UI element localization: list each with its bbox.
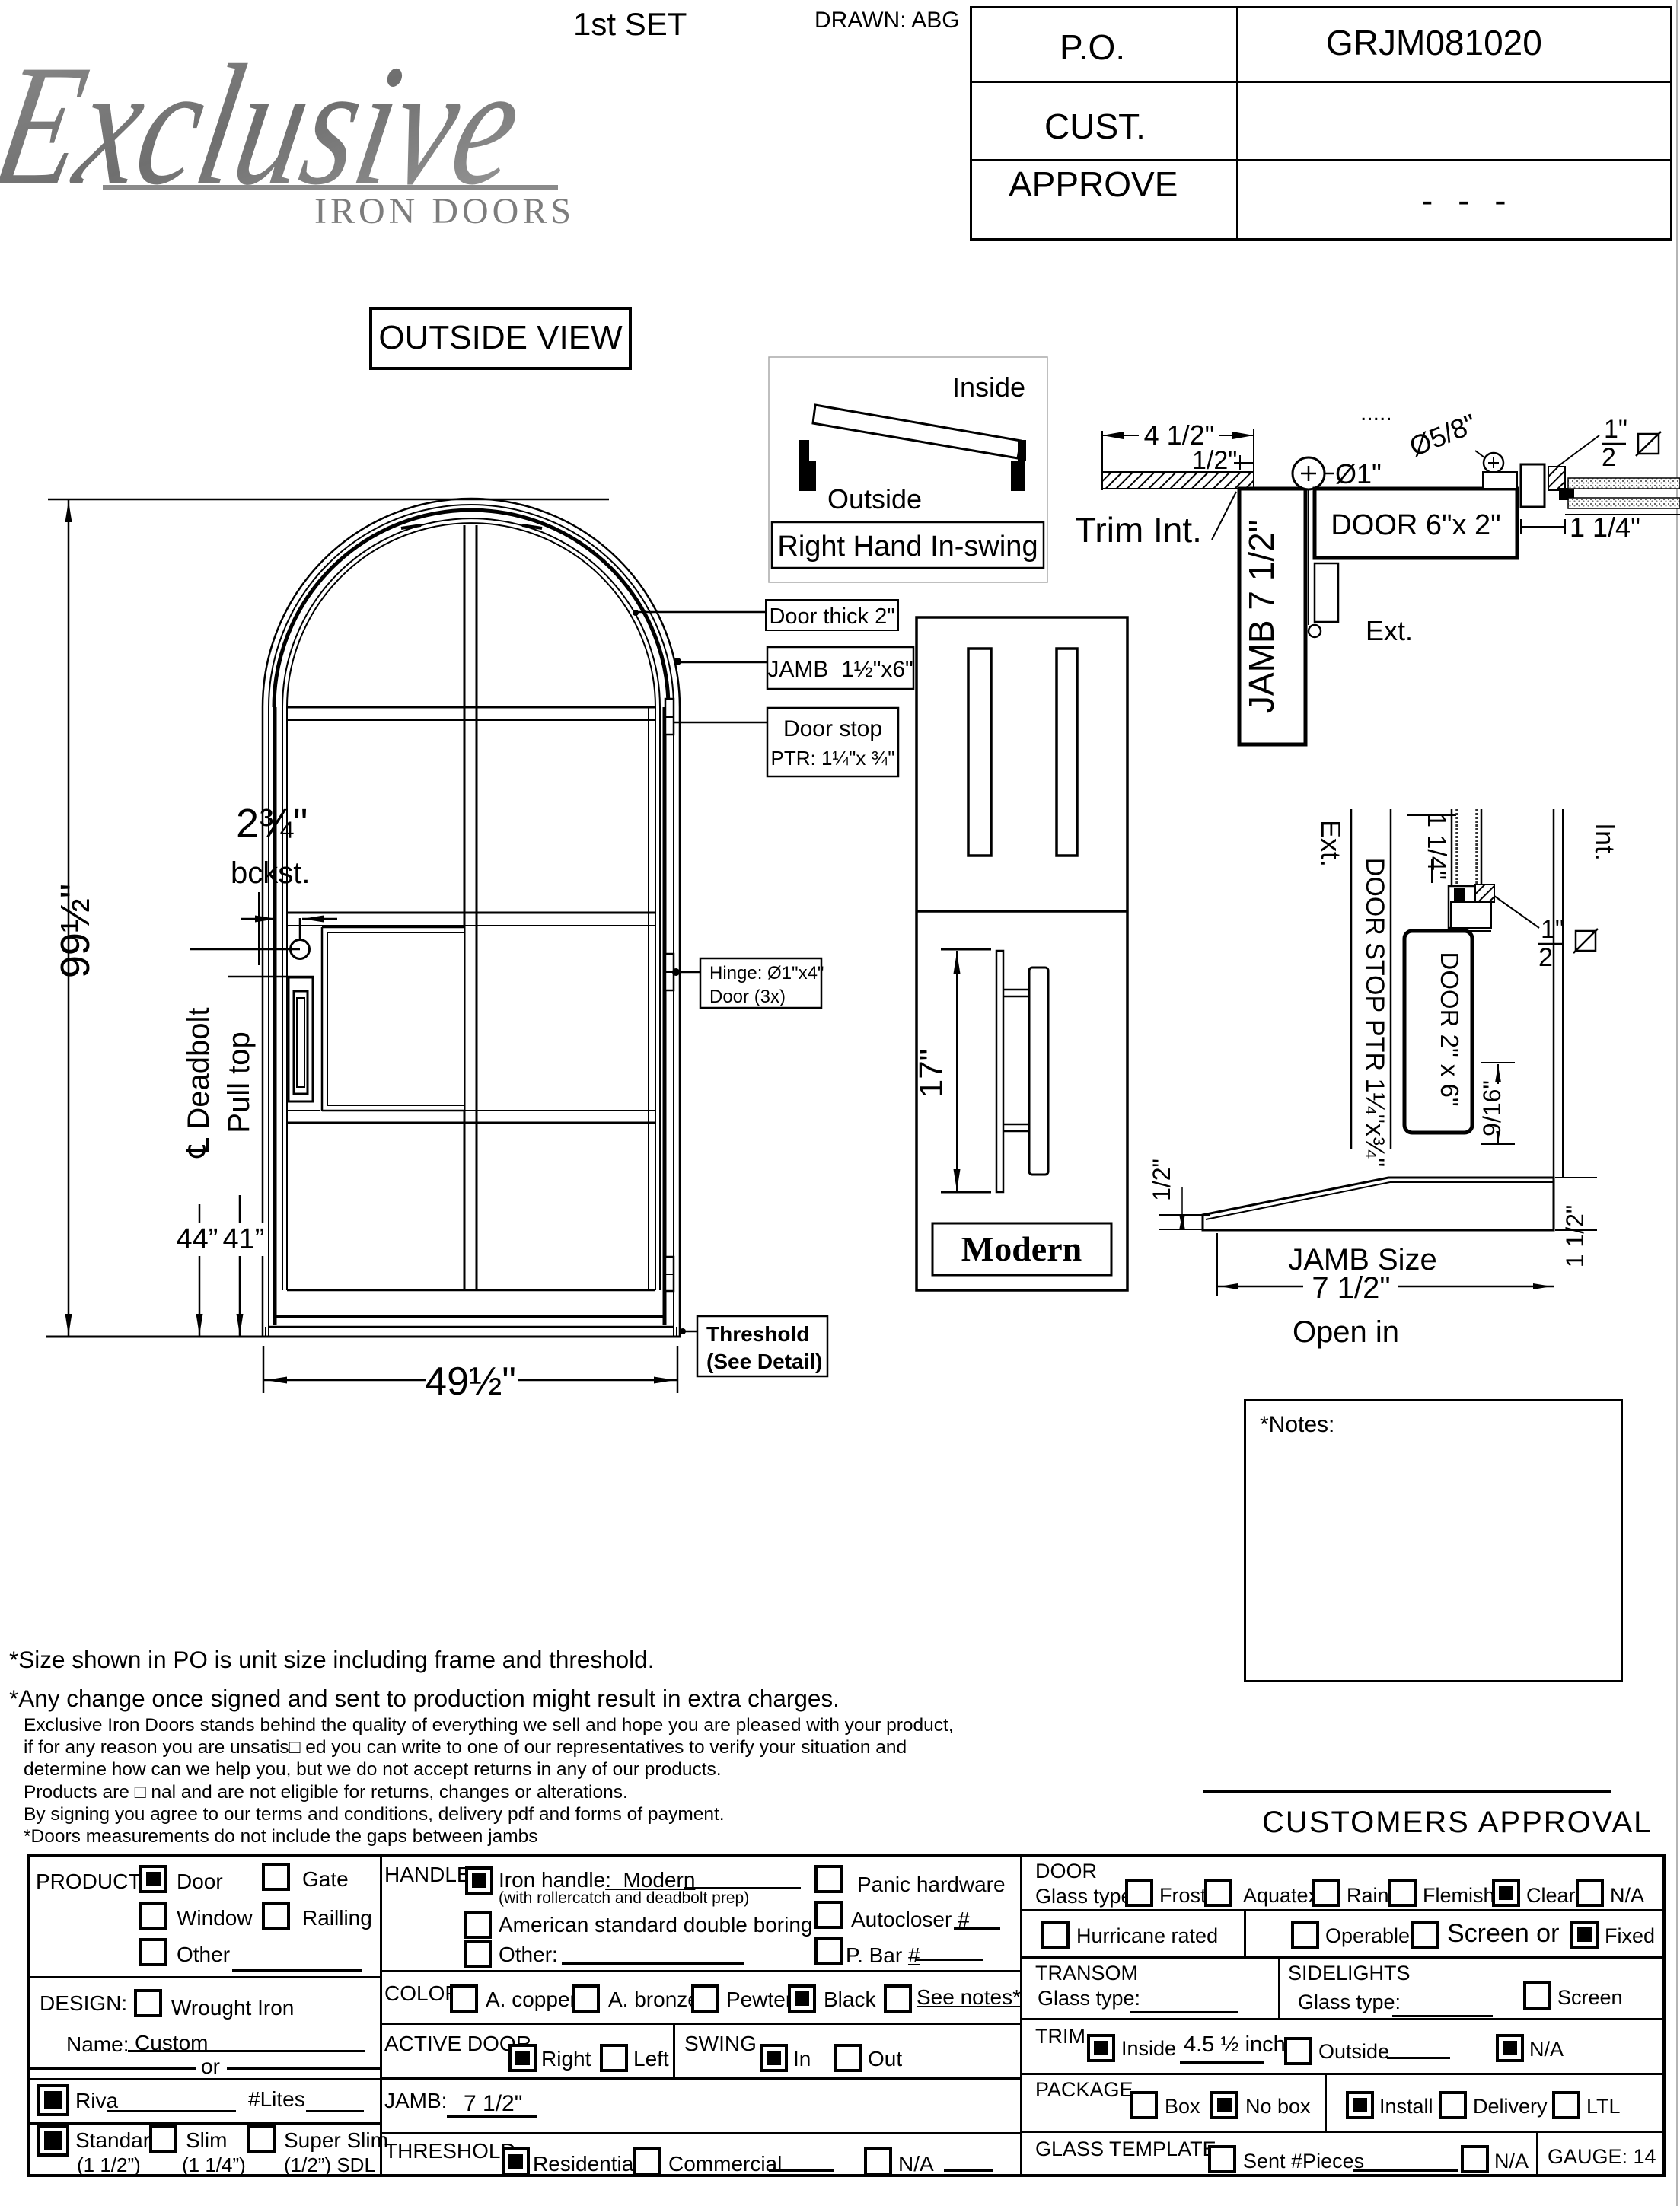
svg-text:41”: 41”: [223, 1223, 265, 1255]
svg-text:JAMB 7 1/2": JAMB 7 1/2": [1242, 520, 1281, 713]
svg-text:Ø5/8": Ø5/8": [1405, 407, 1481, 462]
svg-text:(See Detail): (See Detail): [706, 1350, 823, 1373]
svg-text:1": 1": [1541, 915, 1564, 944]
svg-text:1/2": 1/2": [1192, 446, 1237, 475]
svg-text:Int.: Int.: [1589, 823, 1621, 861]
svg-text:JAMB 1½"x6": JAMB 1½"x6": [767, 657, 913, 682]
svg-text:bckst.: bckst.: [231, 856, 310, 890]
svg-text:Door thick 2": Door thick 2": [769, 604, 894, 629]
svg-text:Threshold: Threshold: [706, 1322, 809, 1346]
svg-text:IRON DOORS: IRON DOORS: [314, 191, 575, 231]
svg-text:1": 1": [1604, 415, 1627, 444]
svg-text:Door stop: Door stop: [783, 716, 882, 741]
svg-text:1 1/2": 1 1/2": [1561, 1205, 1589, 1268]
svg-text:DOOR STOP PTR 1¼"x¾": DOOR STOP PTR 1¼"x¾": [1360, 858, 1389, 1167]
svg-text:1 1/4": 1 1/4": [1422, 813, 1451, 880]
svg-text:DOOR 6"x 2": DOOR 6"x 2": [1331, 509, 1500, 541]
svg-text:2: 2: [1602, 443, 1616, 472]
svg-text:49½": 49½": [425, 1360, 516, 1404]
svg-text:7 1/2": 7 1/2": [1312, 1271, 1390, 1305]
svg-text:Ext.: Ext.: [1366, 615, 1413, 646]
svg-text:.....: .....: [1360, 400, 1392, 426]
svg-text:Outside: Outside: [827, 483, 922, 515]
svg-text:Pull top: Pull top: [222, 1031, 256, 1133]
svg-text:1/2": 1/2": [1148, 1159, 1175, 1201]
svg-text:Trim Int.: Trim Int.: [1075, 510, 1202, 550]
svg-text:℄ Deadbolt: ℄ Deadbolt: [182, 1008, 215, 1159]
svg-text:Right Hand In-swing: Right Hand In-swing: [777, 531, 1038, 563]
svg-text:9/16": 9/16": [1478, 1080, 1506, 1136]
svg-text:1 1/4": 1 1/4": [1570, 512, 1640, 543]
svg-text:Inside: Inside: [952, 371, 1025, 403]
svg-text:Modern: Modern: [961, 1229, 1082, 1268]
svg-text:Ø1": Ø1": [1335, 458, 1382, 489]
svg-text:Ext.: Ext.: [1315, 820, 1347, 867]
svg-text:PTR: 1¼"x ¾": PTR: 1¼"x ¾": [771, 747, 895, 770]
svg-text:Hinge: Ø1"x4": Hinge: Ø1"x4": [709, 963, 824, 983]
svg-text:Door (3x): Door (3x): [709, 987, 786, 1007]
svg-text:17": 17": [913, 1049, 950, 1098]
svg-text:44”: 44”: [177, 1223, 218, 1255]
svg-text:99½": 99½": [53, 884, 98, 978]
svg-text:2¾": 2¾": [236, 801, 308, 846]
svg-text:DOOR 2" x 6": DOOR 2" x 6": [1436, 952, 1464, 1106]
svg-text:Open in: Open in: [1293, 1315, 1399, 1349]
svg-text:2: 2: [1538, 943, 1553, 972]
